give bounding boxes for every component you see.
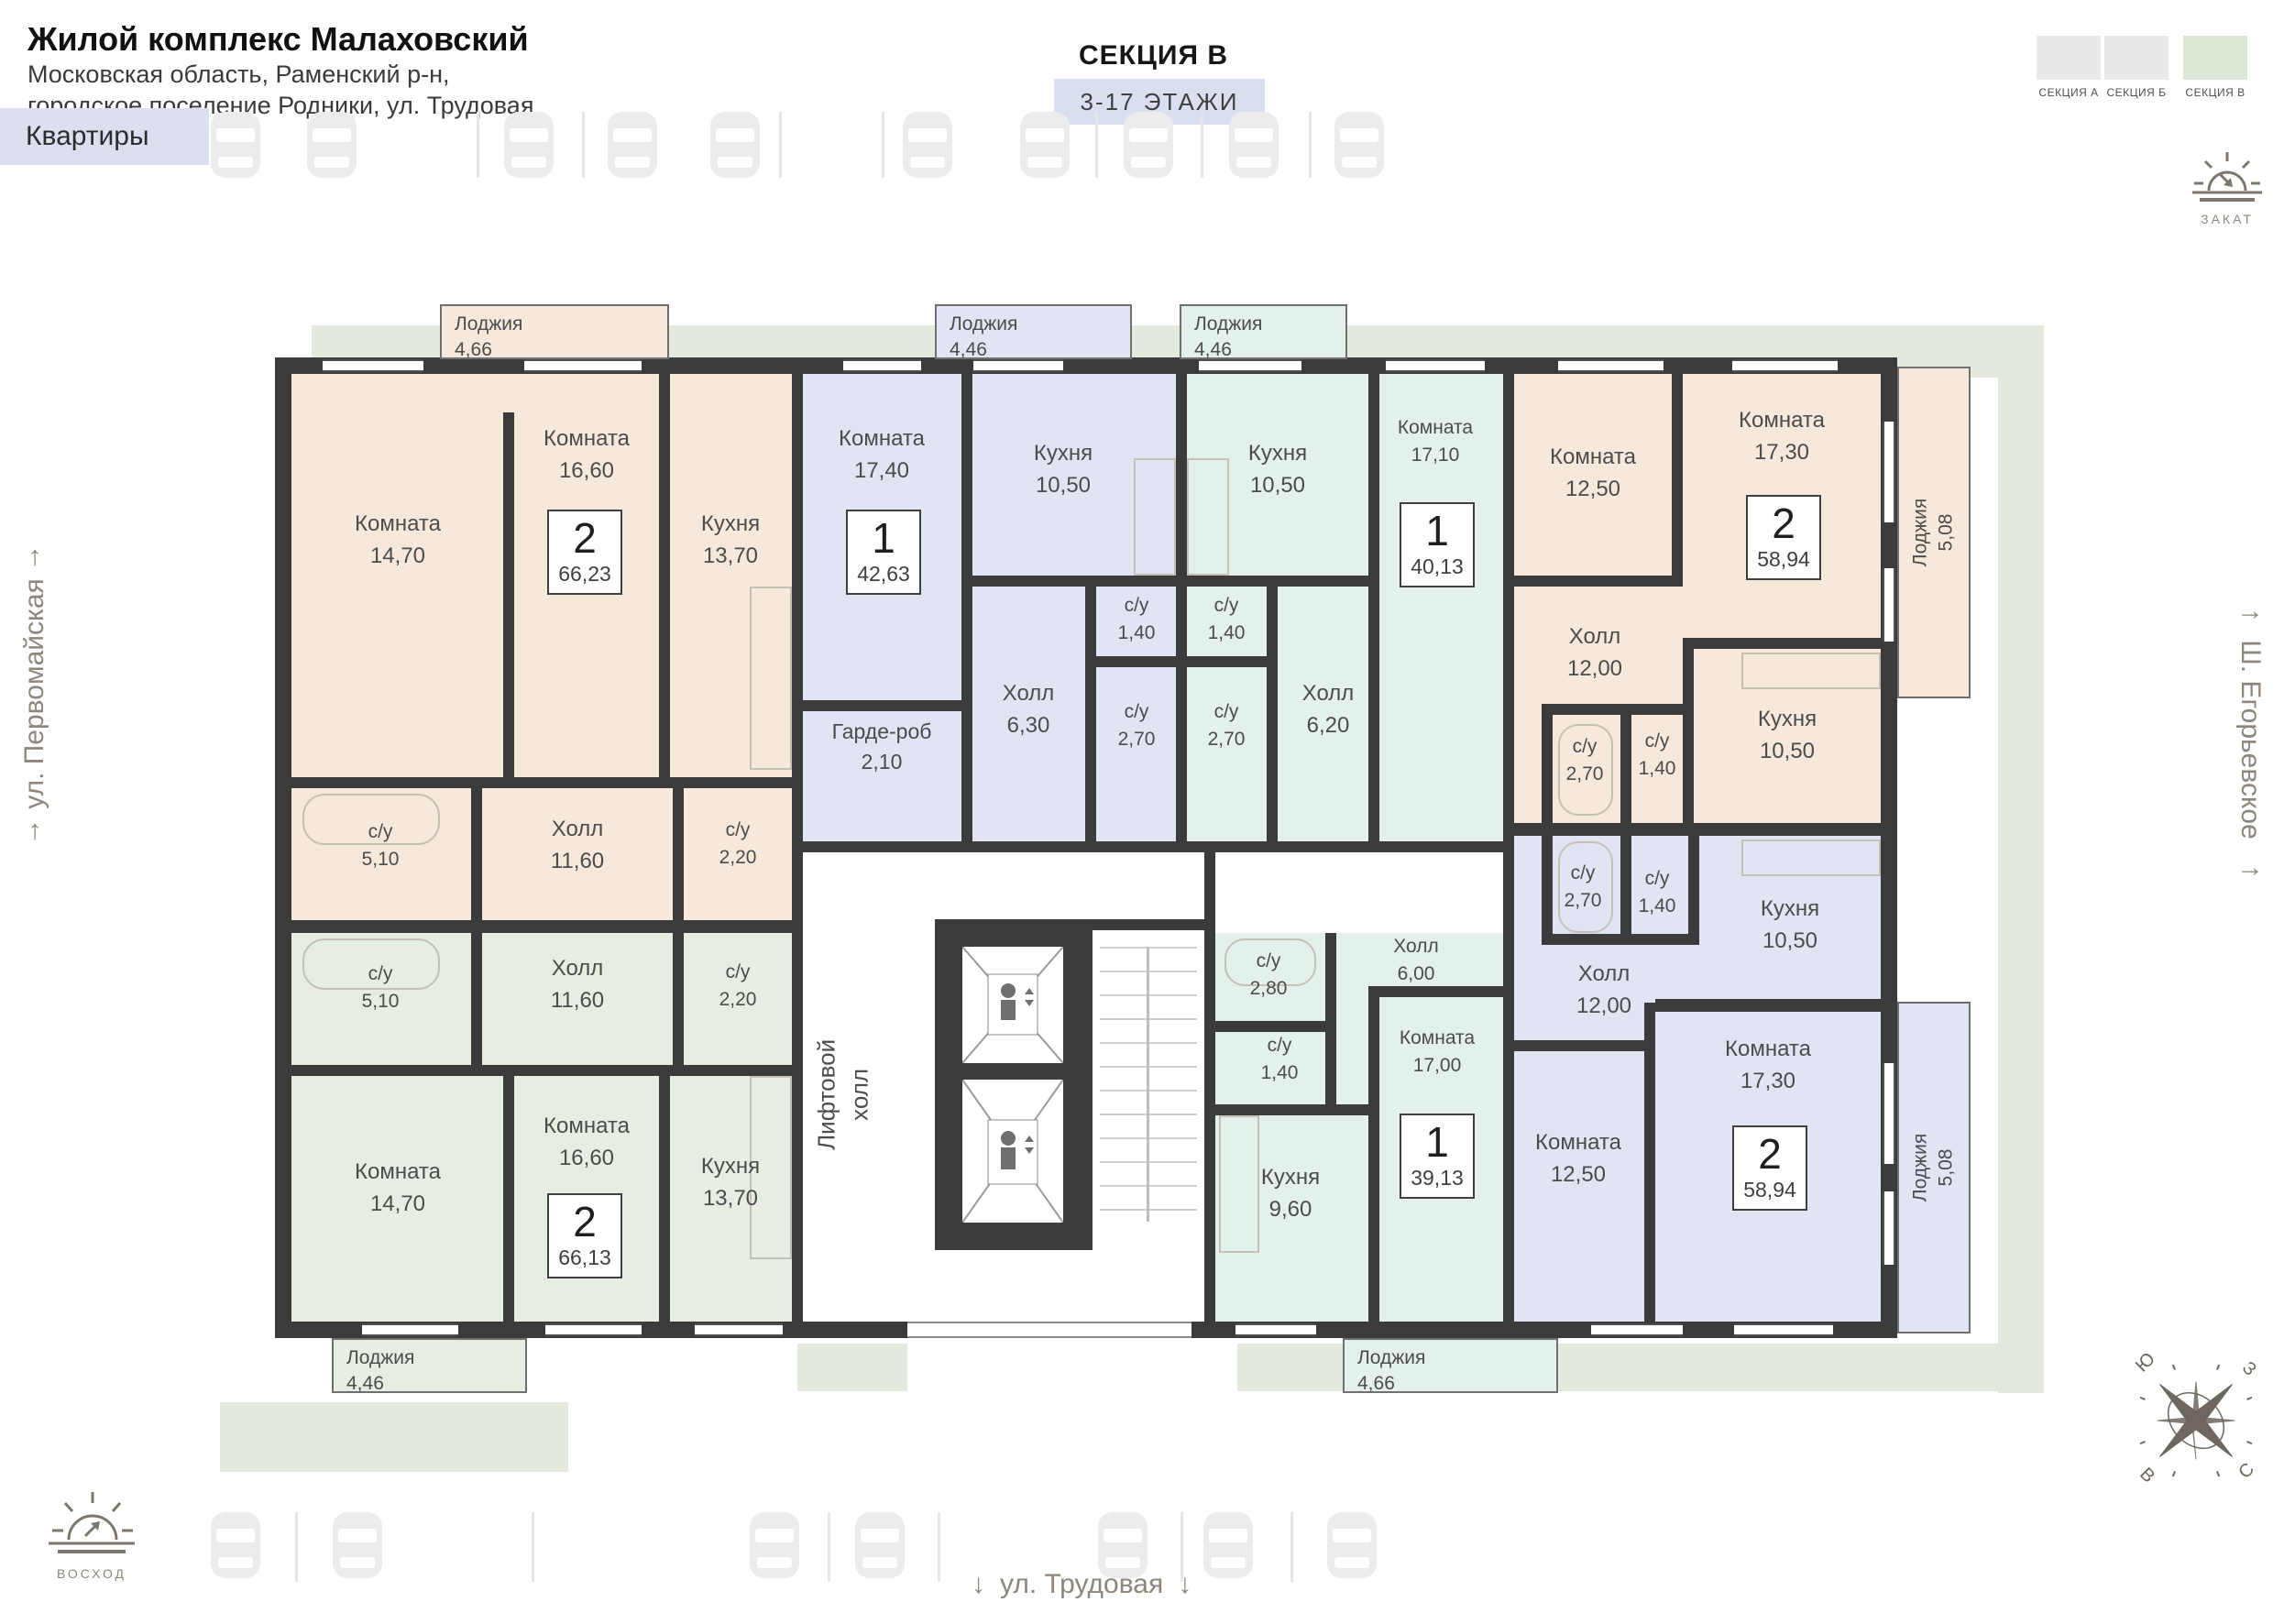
wall [471,788,482,920]
wall [1683,649,1694,823]
parking-divider [1180,1512,1183,1582]
wall [1542,715,1553,823]
wall [1542,934,1699,945]
room-label: с/у1,40 [1639,865,1676,921]
wall [1542,704,1688,715]
room-label: с/у2,70 [1118,698,1156,754]
arrow-up-icon: ↑ [28,542,42,573]
wall [1368,986,1379,1322]
wall [1204,852,1215,1322]
wall [1215,1104,1368,1115]
stairs-rail [1147,947,1149,1222]
street-label-right: → Ш. Егорьевское → [2235,465,2266,1015]
window [545,1323,642,1336]
elevator-cabin [962,1080,1063,1223]
section-b-button[interactable] [2104,36,2169,80]
wall [1514,1040,1655,1051]
car-icon [207,1510,264,1580]
wall [275,357,291,1338]
room-label: с/у1,40 [1208,592,1246,648]
apartment-badge[interactable]: 258,94 [1746,495,1821,580]
loggia: Лоджия5,08 [1897,367,1971,698]
room-label: Комната16,60 [544,1111,630,1175]
room-label: Кухня10,50 [1034,438,1093,502]
lawn [797,1344,907,1391]
loggia: Лоджия4,46 [935,304,1132,359]
elevator-hall-label: Лифтовой холл [810,975,877,1213]
wall [1620,836,1631,939]
compass: Ю З В С [2125,1349,2268,1497]
arrow-right-icon: → [2236,596,2264,627]
room-label: Комната17,00 [1400,1025,1475,1081]
loggia: Лоджия4,66 [1343,1338,1558,1393]
room-label: Кухня10,50 [1248,438,1307,502]
wall [503,412,514,777]
room-label: с/у5,10 [362,818,400,874]
page-title: Жилой комплекс Малаховский [27,20,529,59]
wall [1325,933,1336,1115]
arrow-up-icon: ↑ [28,815,42,846]
window [1734,1323,1833,1336]
wall [1503,374,1514,1322]
apartments-tab[interactable]: Квартиры [0,108,209,165]
section-v-button[interactable] [2183,36,2247,80]
room-label: с/у1,40 [1118,592,1156,648]
sunrise-icon [41,1485,142,1562]
wall [1672,374,1683,587]
wall [1267,587,1278,841]
room-label: Холл11,60 [551,953,604,1017]
arrow-right-icon: → [2236,852,2264,883]
wall [291,777,792,788]
car-icon [746,1510,803,1580]
apartment-badge[interactable]: 139,13 [1400,1114,1475,1199]
parking-divider [938,1512,940,1582]
room-label: Кухня13,70 [701,509,760,573]
wall [659,374,670,777]
parking-divider [582,112,585,178]
car-icon [329,1510,386,1580]
car-icon [1016,110,1073,180]
lawn [1998,325,2044,1393]
apartment-badge[interactable]: 140,13 [1400,502,1475,587]
parking-divider [295,1512,298,1582]
wall [291,1065,792,1076]
entrance [907,1322,1191,1338]
elevator-cabin [962,947,1063,1063]
parking-divider [477,112,479,178]
kitchen-counter-icon [750,587,792,770]
compass-icon: Ю З В С [2125,1349,2268,1492]
wall [935,1239,1093,1250]
wall [1514,576,1672,587]
wall [961,374,972,841]
wall [659,1076,670,1322]
wall [803,841,1503,852]
room-label: Холл11,60 [551,814,604,878]
wall [1514,823,1881,836]
wall [972,576,1176,587]
compass-west-label: З [2238,1358,2260,1380]
window [1558,359,1664,372]
window [323,359,423,372]
room-label: с/у2,20 [719,959,757,1015]
wall [291,920,792,933]
wall [471,933,482,1065]
window [1883,422,1895,522]
room-label: с/у2,70 [1566,733,1604,789]
window [1235,1323,1316,1336]
wall [1644,1003,1655,1322]
room-label: Комната17,30 [1739,405,1825,469]
address-line-1: Московская область, Раменский р-н, [27,60,450,89]
room-label: Кухня13,70 [701,1151,760,1215]
room-label: Холл6,30 [1003,678,1055,742]
wall [1176,374,1187,841]
room-label: Комната17,10 [1398,414,1473,470]
parking-divider [882,112,884,178]
wall [1187,576,1368,587]
room-label: Кухня10,50 [1758,704,1817,768]
wall [1620,715,1631,823]
apartment-badge[interactable]: 258,94 [1732,1125,1807,1211]
parking-divider [532,1512,534,1582]
apartment-badge[interactable]: 266,13 [547,1193,622,1278]
room-label: Гарде-роб 2,10 [822,717,941,778]
wall [1683,638,1881,649]
wall [1085,656,1176,667]
window [1883,1063,1895,1164]
wall [803,700,961,711]
window [1591,1323,1683,1336]
lawn [220,1402,568,1472]
compass-north-label: С [2235,1459,2258,1483]
kitchen-counter-icon [1219,1115,1259,1253]
wall [935,919,946,1250]
sunset-label: ЗАКАТ [2189,212,2266,226]
street-label-left: ↑ ул. Первомайская ↑ [19,419,50,969]
wall [792,374,803,1322]
parking-divider [779,112,782,178]
room-label: с/у1,40 [1639,728,1676,784]
street-label-bottom: ↓ ул. Трудовая ↓ [972,1569,1191,1600]
elevator-icon [962,1080,1063,1223]
section-b-label: СЕКЦИЯ Б [2095,86,2178,99]
room-label: с/у2,20 [719,817,757,872]
room-label: Комната12,50 [1535,1127,1621,1191]
parking-divider [1309,112,1312,178]
wall [1655,999,1881,1012]
arrow-down-icon: ↓ [972,1569,985,1600]
loggia: Лоджия5,08 [1897,1002,1971,1333]
car-icon [851,1510,908,1580]
loggia: Лоджия4,46 [1180,304,1347,359]
wall [1215,1021,1325,1032]
car-icon [1323,1510,1380,1580]
wall [1187,656,1267,667]
kitchen-counter-icon [1134,458,1176,576]
window [1883,1191,1895,1265]
wall [946,919,1204,930]
wall [673,933,684,1065]
car-icon [1200,1510,1257,1580]
room-label: с/у5,10 [362,960,400,1016]
section-a-button[interactable] [2037,36,2101,80]
sunrise-block: ВОСХОД [37,1485,147,1581]
room-label: Холл6,00 [1393,933,1439,989]
car-icon [1094,1510,1151,1580]
parking-divider [1201,112,1203,178]
room-label: Комната17,40 [839,423,925,488]
wall [1542,836,1553,939]
parking-divider [1095,112,1098,178]
room-label: Комната12,50 [1550,442,1636,506]
window [1732,359,1838,372]
room-label: Комната14,70 [355,1157,441,1221]
room-label: с/у2,70 [1208,698,1246,754]
window [362,1323,458,1336]
section-v-label: СЕКЦИЯ В [2174,86,2257,99]
room-label: Комната14,70 [355,509,441,573]
room-label: Кухня9,60 [1261,1162,1320,1226]
window [843,359,921,372]
loggia: Лоджия4,46 [332,1338,527,1393]
car-icon [1120,110,1177,180]
elevator-icon [962,947,1063,1063]
sunset-block: ЗАКАТ [2189,147,2266,226]
parking-divider [1290,1512,1293,1582]
car-icon [500,110,557,180]
room-label: с/у2,70 [1565,860,1602,916]
wall [1368,374,1379,841]
sunrise-label: ВОСХОД [37,1566,147,1581]
wall [503,1076,514,1322]
page: Жилой комплекс Малаховский Московская об… [0,0,2295,1624]
wall [1688,836,1699,939]
parking-divider [828,1512,830,1582]
car-icon [1331,110,1388,180]
window [695,1323,783,1336]
car-icon [1225,110,1282,180]
room-label: Холл6,20 [1302,678,1355,742]
sunset-icon [2189,147,2266,207]
kitchen-counter-icon [1187,458,1229,576]
loggia: Лоджия4,66 [440,304,669,359]
car-icon [207,110,264,180]
car-icon [303,110,360,180]
compass-south-label: Ю [2132,1349,2159,1377]
room-label: с/у2,80 [1250,948,1288,1004]
kitchen-counter-icon [1741,839,1881,876]
wall [673,788,684,920]
window [1386,359,1485,372]
car-icon [899,110,956,180]
room-label: Кухня10,50 [1761,894,1819,958]
room-label: Комната16,60 [544,423,630,488]
kitchen-counter-icon [1741,653,1881,689]
compass-east-label: В [2136,1464,2158,1487]
apartment-badge[interactable]: 142,63 [846,510,921,595]
wall [1085,587,1096,841]
room-label: Холл12,00 [1567,621,1622,686]
window [1883,568,1895,642]
room-label: с/у1,40 [1261,1032,1299,1088]
room-label: Холл12,00 [1576,959,1631,1023]
section-title: СЕКЦИЯ В [1079,40,1228,71]
apartment-badge[interactable]: 266,23 [547,510,622,595]
room-label: Комната17,30 [1725,1034,1811,1098]
car-icon [707,110,763,180]
car-icon [604,110,661,180]
